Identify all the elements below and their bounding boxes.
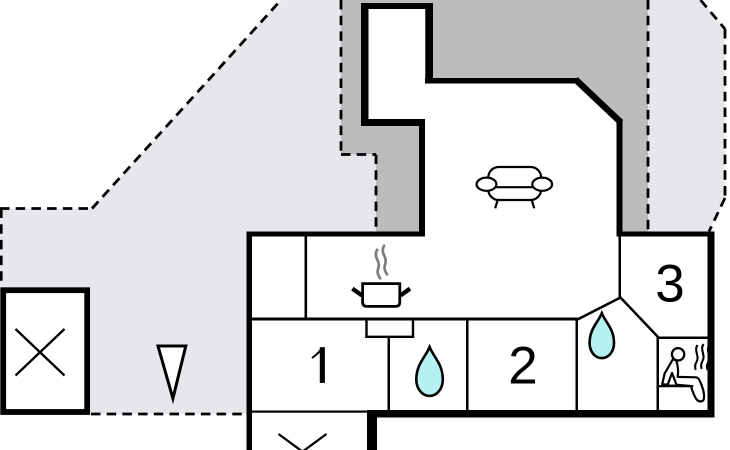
svg-text:3: 3	[655, 255, 684, 314]
svg-text:2: 2	[508, 337, 537, 396]
